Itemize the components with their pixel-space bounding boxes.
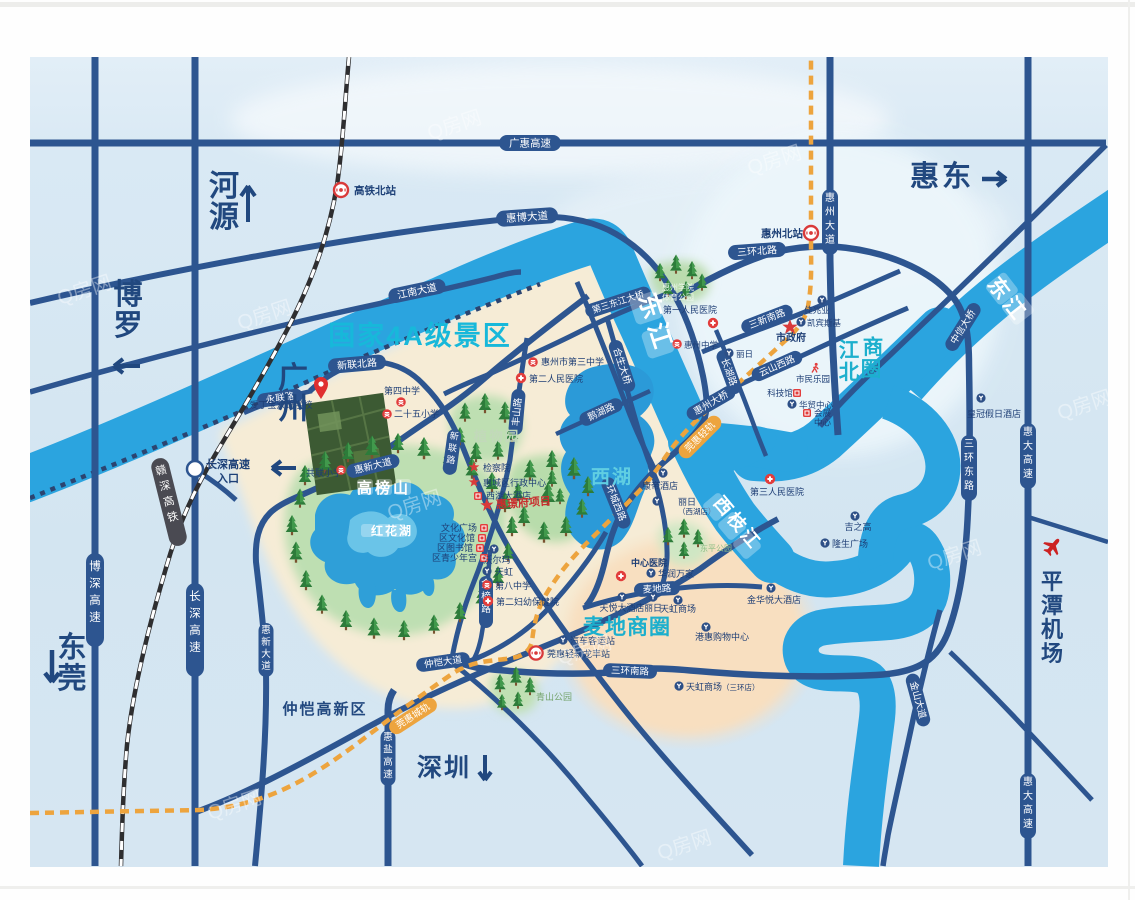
svg-text:中心医院: 中心医院 [631,557,667,568]
svg-text:第一人民医院: 第一人民医院 [663,304,717,315]
svg-text:科技馆: 科技馆 [767,388,793,398]
svg-text:国家4A级景区: 国家4A级景区 [328,320,512,351]
svg-text:东平公园: 东平公园 [700,543,732,553]
svg-text:港惠购物中心: 港惠购物中心 [695,631,749,642]
svg-text:区文化馆: 区文化馆 [439,532,475,543]
svg-text:康帝酒店: 康帝酒店 [642,480,678,491]
svg-text:东莞: 东莞 [57,630,86,695]
svg-text:第八中学: 第八中学 [495,580,531,591]
svg-text:吉之高: 吉之高 [844,521,871,532]
svg-text:仲恺高新区: 仲恺高新区 [282,700,367,718]
svg-text:会展中心: 会展中心 [814,408,832,428]
svg-text:体育公园: 体育公园 [662,292,694,302]
svg-text:二十五小学: 二十五小学 [394,408,439,419]
svg-text:检察院: 检察院 [483,462,510,473]
svg-text:市政府: 市政府 [776,331,806,344]
svg-text:丽日: 丽日 [736,349,753,359]
svg-text:凯宾斯基: 凯宾斯基 [807,318,842,328]
svg-text:第二妇幼保健院: 第二妇幼保健院 [496,596,559,607]
svg-text:惠州市第三中学: 惠州市第三中学 [541,356,604,367]
svg-text:商圈: 商圈 [861,335,884,381]
svg-text:博罗: 博罗 [113,278,142,342]
svg-text:第四中学: 第四中学 [384,385,420,396]
svg-text:惠州中学: 惠州中学 [684,340,719,350]
svg-text:植物园: 植物园 [473,428,521,444]
svg-text:丰山路: 丰山路 [510,397,524,427]
svg-text:第三人民医院: 第三人民医院 [750,486,804,497]
svg-text:第二人民医院: 第二人民医院 [529,373,583,384]
svg-text:区图书馆: 区图书馆 [437,542,473,553]
svg-text:广惠高速: 广惠高速 [509,137,551,150]
svg-text:天虹: 天虹 [495,567,513,577]
svg-text:平潭机场: 平潭机场 [1041,569,1063,666]
svg-text:麦地路: 麦地路 [642,582,672,596]
svg-text:华润万家: 华润万家 [658,568,694,579]
svg-text:丽日: 丽日 [678,497,696,507]
svg-text:隆生广场: 隆生广场 [832,538,868,549]
svg-text:西湖: 西湖 [591,466,633,488]
svg-text:高铁北站: 高铁北站 [354,184,396,197]
svg-text:河源: 河源 [209,170,239,234]
svg-text:文化广场: 文化广场 [441,522,477,533]
svg-text:青山公园: 青山公园 [536,691,572,702]
svg-text:三环南路: 三环南路 [611,664,650,677]
svg-text:区青少年宫: 区青少年宫 [432,552,477,563]
svg-text:天悦大酒店: 天悦大酒店 [599,602,644,613]
svg-text:金华悦大酒店: 金华悦大酒店 [747,594,801,605]
svg-text:深圳: 深圳 [417,754,471,782]
svg-text:佳兆业: 佳兆业 [804,305,830,315]
svg-text:惠州学院: 惠州学院 [662,282,694,292]
svg-text:惠东: 惠东 [910,159,974,193]
svg-text:皇冠假日酒店: 皇冠假日酒店 [967,408,1021,419]
svg-text:天虹商场: 天虹商场 [660,603,696,614]
svg-text:江北: 江北 [839,339,860,384]
svg-text:市民乐园: 市民乐园 [796,374,830,384]
svg-text:惠城区行政中心: 惠城区行政中心 [483,477,546,488]
svg-text:广州: 广州 [278,362,308,426]
svg-text:惠州北站: 惠州北站 [761,227,803,240]
svg-text:天虹商场（三环店）: 天虹商场（三环店） [686,681,760,692]
svg-text:沃尔玛: 沃尔玛 [483,554,510,565]
